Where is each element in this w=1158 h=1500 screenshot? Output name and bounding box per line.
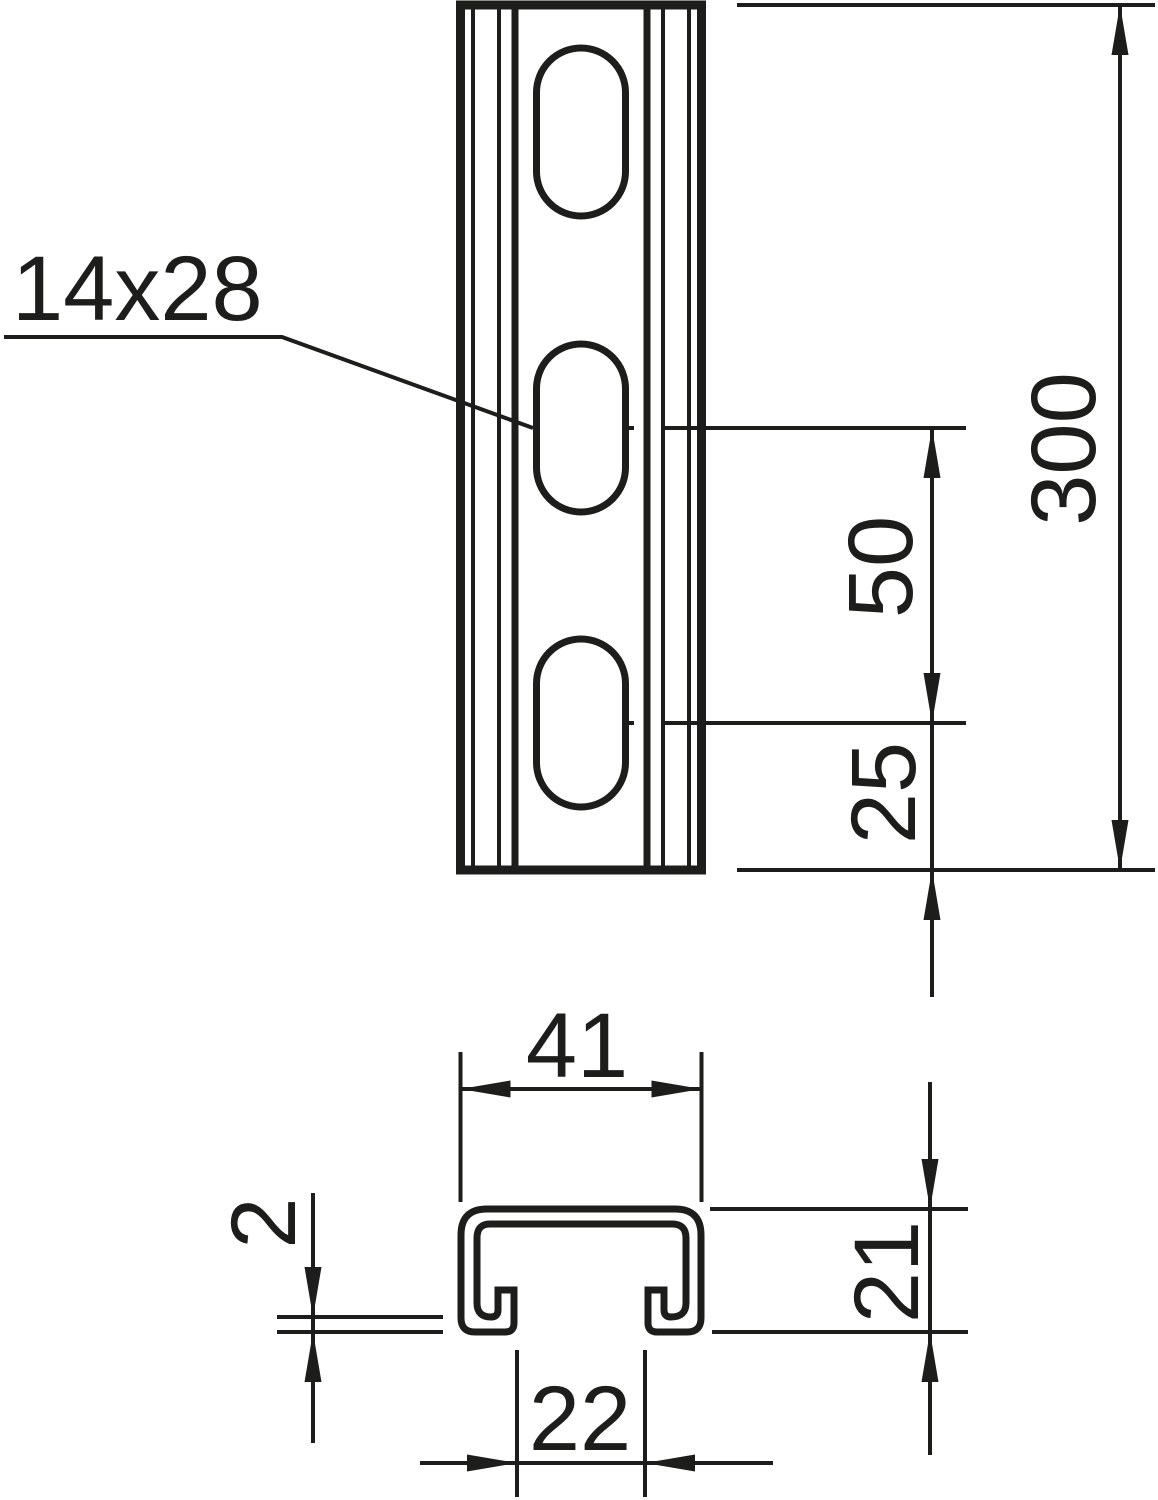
profile-outline [461, 1209, 701, 1332]
dim-arrow-opening-right [645, 1455, 695, 1472]
dim-arrow-outer-width-left [461, 1081, 511, 1098]
dim-label-opening-width: 22 [529, 1368, 631, 1470]
dim-arrow-total-length-bottom [1112, 820, 1129, 870]
dim-arrow-opening-left [467, 1455, 517, 1472]
dim-label-slot-pitch: 50 [830, 516, 932, 618]
mounting-slot-3 [537, 639, 626, 807]
dim-arrow-thickness-bottom [305, 1332, 322, 1382]
dim-label-outer-width: 41 [526, 995, 628, 1097]
mounting-rail-technical-drawing: 14x28 50 25 300 41 [0, 0, 1158, 1500]
dim-arrow-profile-height-bottom [922, 1332, 939, 1382]
slot-size-label: 14x28 [12, 238, 263, 340]
technical-drawing-page: 14x28 50 25 300 41 [0, 0, 1158, 1500]
dim-arrow-slot-pitch-top [924, 428, 941, 478]
dim-label-total-length: 300 [1013, 372, 1115, 526]
dim-arrow-profile-height-top [922, 1159, 939, 1209]
dim-arrow-end-offset-bottom [924, 870, 941, 920]
dim-label-material-thickness: 2 [213, 1197, 315, 1248]
mounting-slot-2 [537, 344, 626, 512]
dim-arrow-total-length-top [1112, 5, 1129, 55]
rail-front-view: 14x28 50 25 300 [4, 5, 1155, 997]
dim-arrow-thickness-top [305, 1267, 322, 1317]
slot-label-leader-line [4, 337, 533, 428]
rail-body-outline [461, 5, 702, 870]
mounting-slot-1 [537, 48, 626, 216]
dim-arrow-outer-width-right [652, 1081, 702, 1098]
dim-arrow-slot-pitch-bottom [924, 673, 941, 723]
dim-label-end-offset: 25 [833, 742, 935, 844]
rail-section-view: 41 21 2 22 [213, 995, 968, 1497]
dim-label-profile-height: 21 [836, 1221, 938, 1323]
